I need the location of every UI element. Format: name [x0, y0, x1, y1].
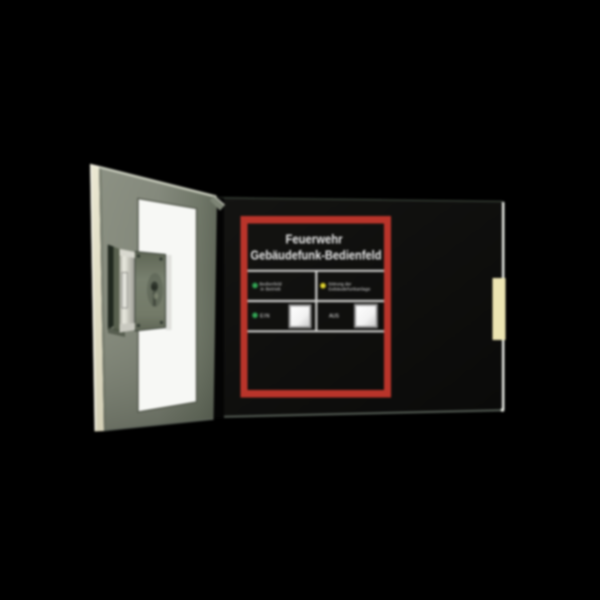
svg-text:Feuerwehr: Feuerwehr: [286, 233, 343, 247]
svg-text:EIN: EIN: [260, 313, 270, 319]
svg-text:Gebäudefunkanlage: Gebäudefunkanlage: [328, 286, 371, 291]
svg-text:AUS: AUS: [329, 313, 340, 319]
svg-text:in Betrieb: in Betrieb: [261, 286, 282, 291]
svg-text:Gebäudefunk-Bedienfeld: Gebäudefunk-Bedienfeld: [251, 249, 382, 263]
